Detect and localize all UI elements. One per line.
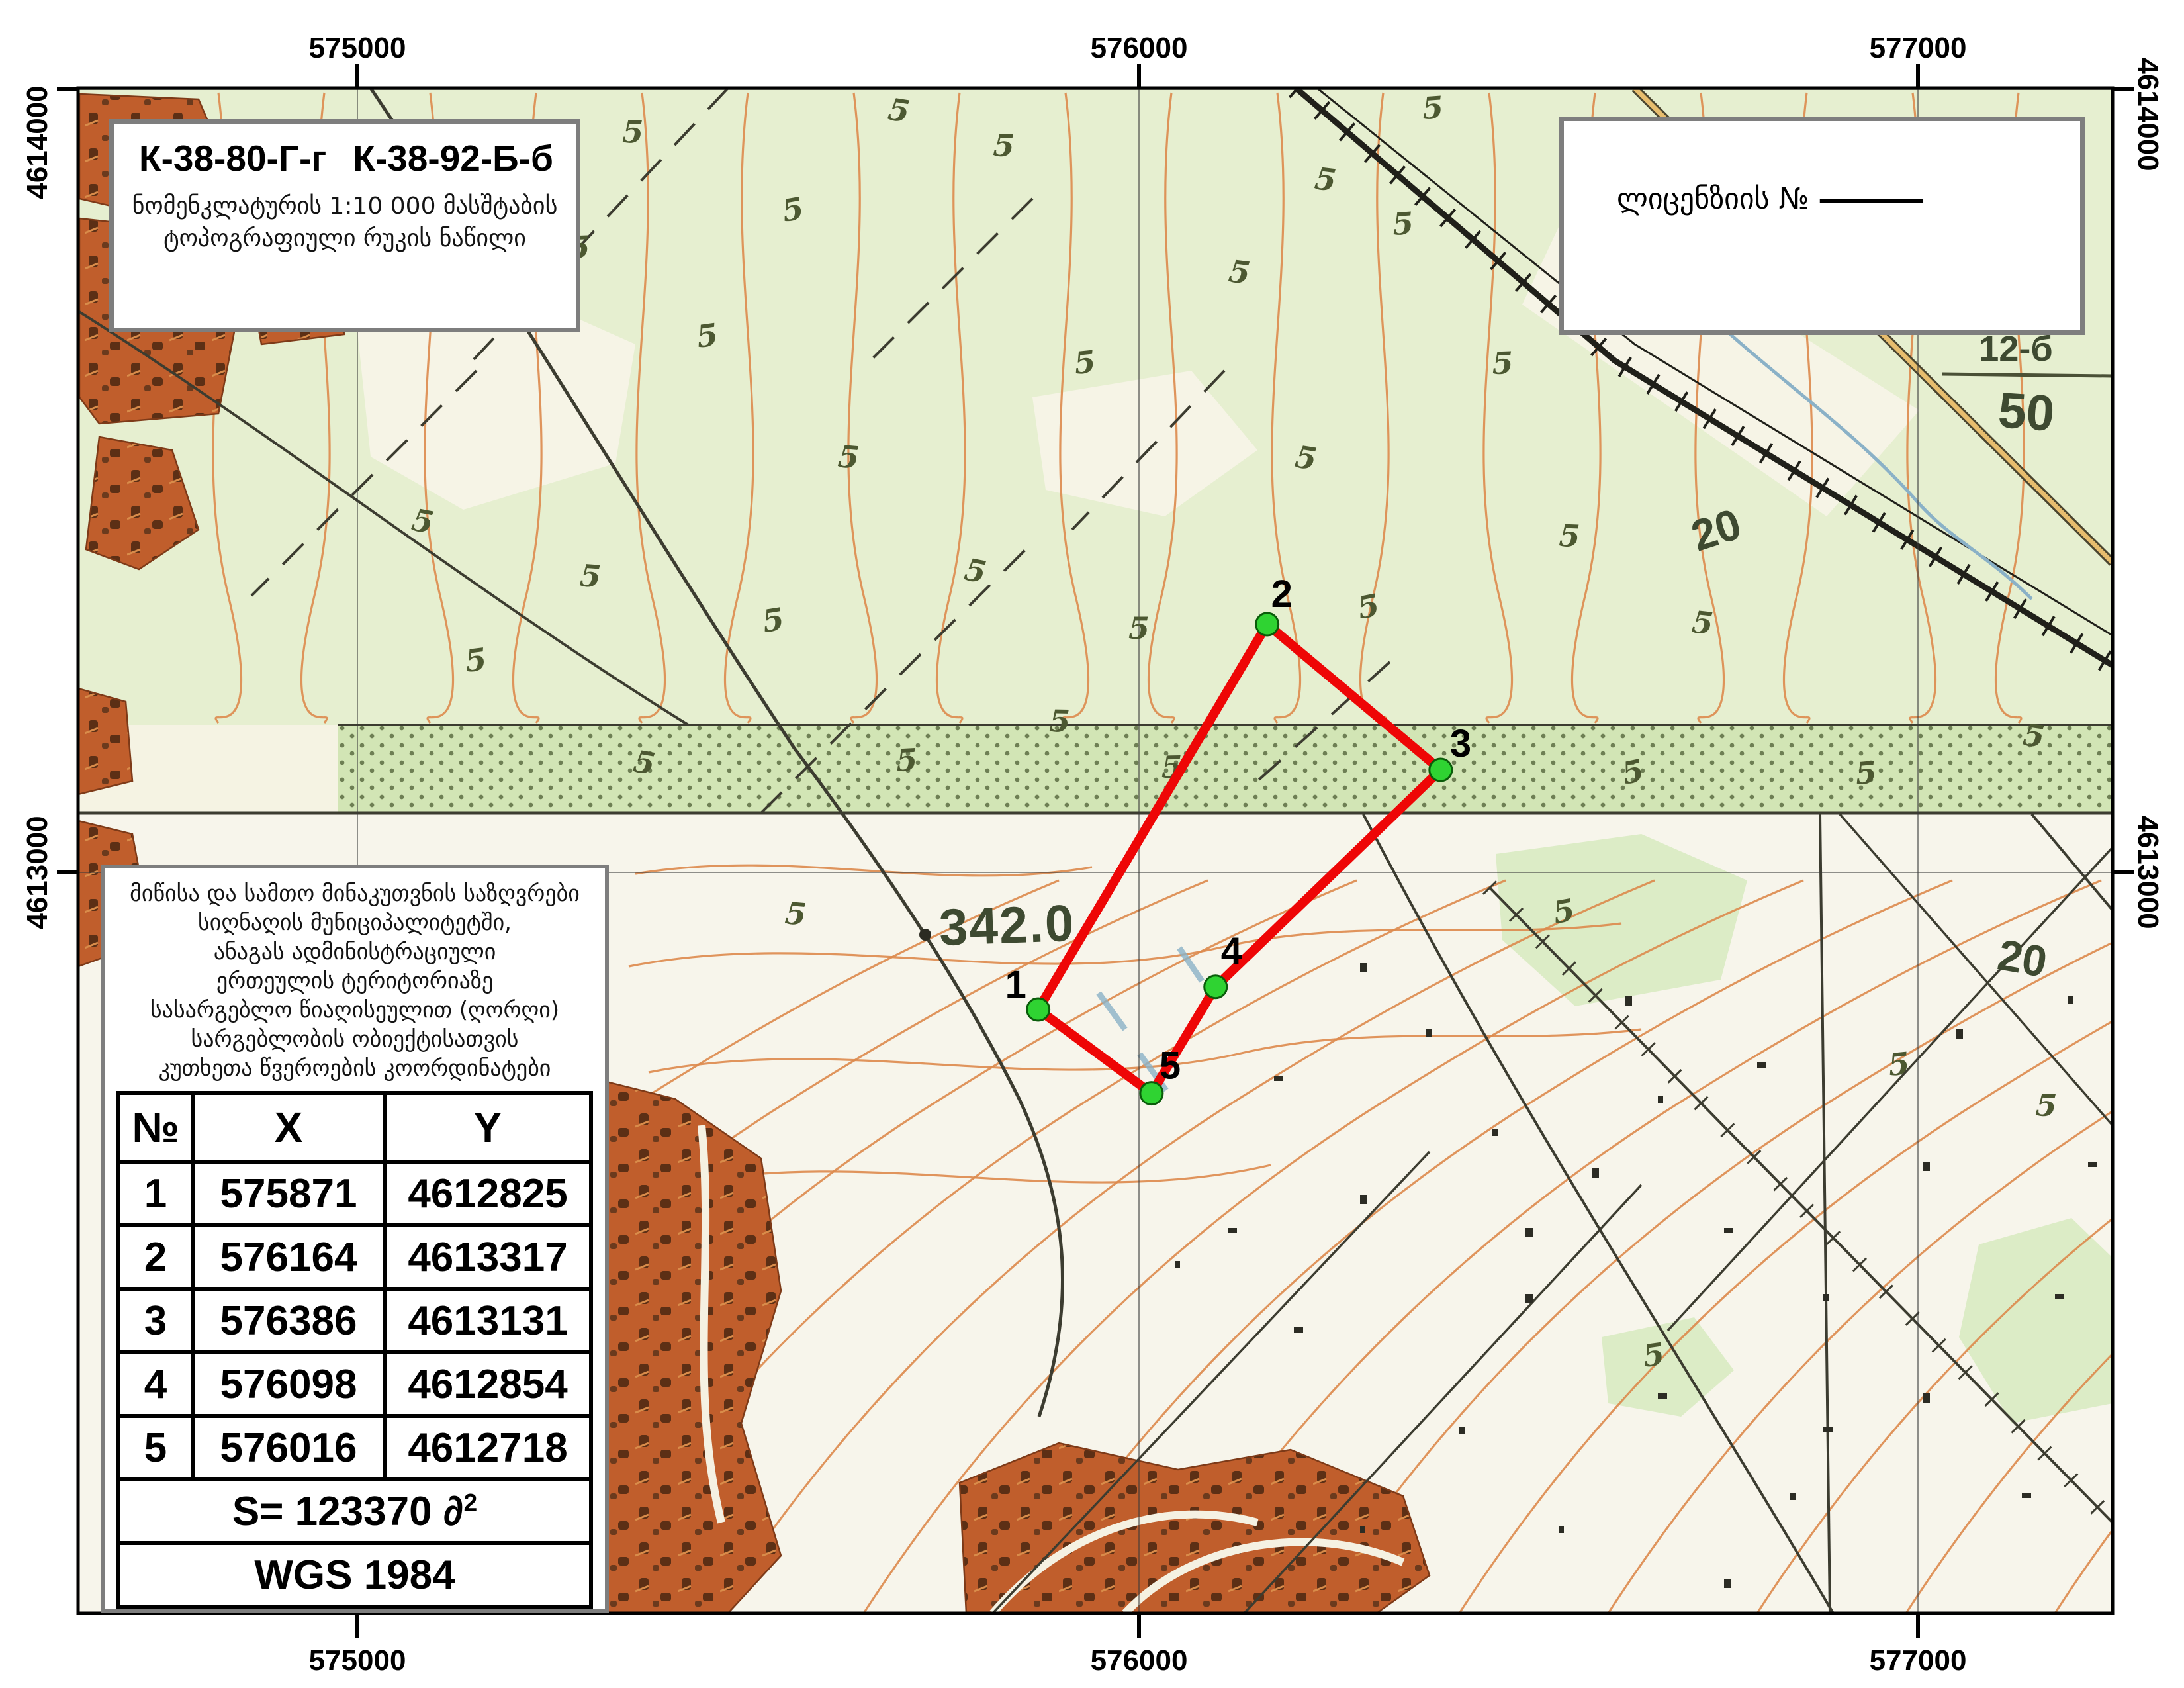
svg-text:5: 5 <box>1690 604 1715 641</box>
svg-text:5: 5 <box>992 127 1015 164</box>
svg-text:5: 5 <box>895 741 919 778</box>
datum-value: WGS 1984 <box>118 1543 591 1607</box>
grid-label: 4614000 <box>21 85 54 199</box>
area-value: S= 123370 <box>232 1489 432 1534</box>
svg-text:5: 5 <box>1073 344 1097 381</box>
svg-text:5: 5 <box>622 114 644 150</box>
area-unit: ∂ <box>443 1489 464 1534</box>
license-blank-line: ———— <box>1818 182 1921 216</box>
license-label: ლიცენზიის № <box>1617 182 1809 216</box>
col-header-y: Y <box>385 1093 591 1162</box>
sheet-code-right: К-38-92-Б-б <box>353 137 553 179</box>
contour-label-20-right: 20 <box>1994 930 2050 987</box>
description-line: ერთეულის ტერიტორიაზე <box>105 966 605 996</box>
svg-text:5: 5 <box>784 895 808 933</box>
description-panel: მიწისა და სამთო მინაკუთვნის საზღვრებისიღ… <box>101 865 609 1613</box>
svg-text:5: 5 <box>1128 610 1150 646</box>
datum-row: WGS 1984 <box>118 1543 591 1607</box>
grid-label: 4613000 <box>2131 816 2164 929</box>
license-number-box: ლიცენზიის № ———— <box>1559 117 2085 335</box>
svg-text:5: 5 <box>1227 253 1252 291</box>
svg-text:5: 5 <box>2034 1087 2058 1124</box>
col-header-n: № <box>118 1093 193 1162</box>
col-header-x: X <box>193 1093 385 1162</box>
svg-text:5: 5 <box>578 557 602 594</box>
polygon-vertex <box>1430 759 1452 781</box>
table-row: 25761644613317 <box>118 1225 591 1289</box>
svg-text:5: 5 <box>1049 703 1071 739</box>
polygon-vertex-label: 4 <box>1221 930 1242 973</box>
description-line: ანაგას ადმინისტრაციული <box>105 937 605 966</box>
table-row: 15758714612825 <box>118 1162 591 1225</box>
description-line: სასარგებლო წიაღისეულით (ღორღი) <box>105 996 605 1025</box>
svg-text:5: 5 <box>463 641 488 679</box>
polygon-vertex-label: 2 <box>1271 573 1293 616</box>
grid-label: 577000 <box>1870 32 1967 65</box>
svg-text:5: 5 <box>1887 1045 1911 1083</box>
grid-label: 4614000 <box>2131 58 2164 171</box>
description-line: კუთხეთა წვეროების კოორდინატები <box>105 1054 605 1083</box>
svg-text:5: 5 <box>1491 345 1514 381</box>
description-line: მიწისა და სამთო მინაკუთვნის საზღვრები <box>105 879 605 908</box>
grid-label: 4613000 <box>21 816 54 929</box>
polygon-vertex <box>1256 613 1279 635</box>
grid-label: 575000 <box>309 1644 406 1677</box>
grid-label: 576000 <box>1091 1644 1188 1677</box>
description-line: სიღნაღის მუნიციპალიტეტში, <box>105 908 605 937</box>
grid-label: 576000 <box>1091 32 1188 65</box>
svg-text:5: 5 <box>1313 160 1338 198</box>
nomenclature-subtitle-2: ტოპოგრაფიული რუკის ნაწილი <box>114 222 576 255</box>
description-line: სარგებლობის ობიექტისათვის <box>105 1025 605 1054</box>
svg-text:5: 5 <box>1421 89 1445 126</box>
table-row: 55760164612718 <box>118 1416 591 1479</box>
nomenclature-box: К-38-80-Г-г К-38-92-Б-б ნომენკლატურის 1:… <box>109 119 580 332</box>
svg-text:5: 5 <box>1391 205 1415 242</box>
nomenclature-subtitle-1: ნომენკლატურის 1:10 000 მასშტაბის <box>114 190 576 222</box>
polygon-vertex <box>1027 998 1050 1021</box>
map-sheet: 555555555555555555555555555555555555 342… <box>0 0 2184 1688</box>
table-row: 45760984612854 <box>118 1352 591 1416</box>
contour-label-50: 50 <box>1997 382 2056 442</box>
coordinates-table: № X Y 1575871461282525761644613317357638… <box>116 1091 593 1609</box>
polygon-vertex-label: 5 <box>1160 1045 1181 1088</box>
svg-text:5: 5 <box>1559 518 1581 554</box>
polygon-vertex <box>1205 976 1227 998</box>
grid-label: 577000 <box>1870 1644 1967 1677</box>
spot-elevation-label: 342.0 <box>938 894 1076 957</box>
sheet-code-left: К-38-80-Г-г <box>139 137 326 179</box>
svg-text:5: 5 <box>1854 754 1878 792</box>
grid-label: 575000 <box>309 32 406 65</box>
area-row: S= 123370 ∂2 <box>118 1479 591 1543</box>
km-sign-label: 12-б <box>1979 329 2052 369</box>
polygon-vertex-label: 3 <box>1450 722 1471 765</box>
svg-text:5: 5 <box>837 438 861 476</box>
table-row: 35763864613131 <box>118 1289 591 1352</box>
spot-elevation-point <box>919 929 931 941</box>
description-text: მიწისა და სამთო მინაკუთვნის საზღვრებისიღ… <box>105 879 605 1083</box>
polygon-vertex-label: 1 <box>1005 963 1026 1006</box>
